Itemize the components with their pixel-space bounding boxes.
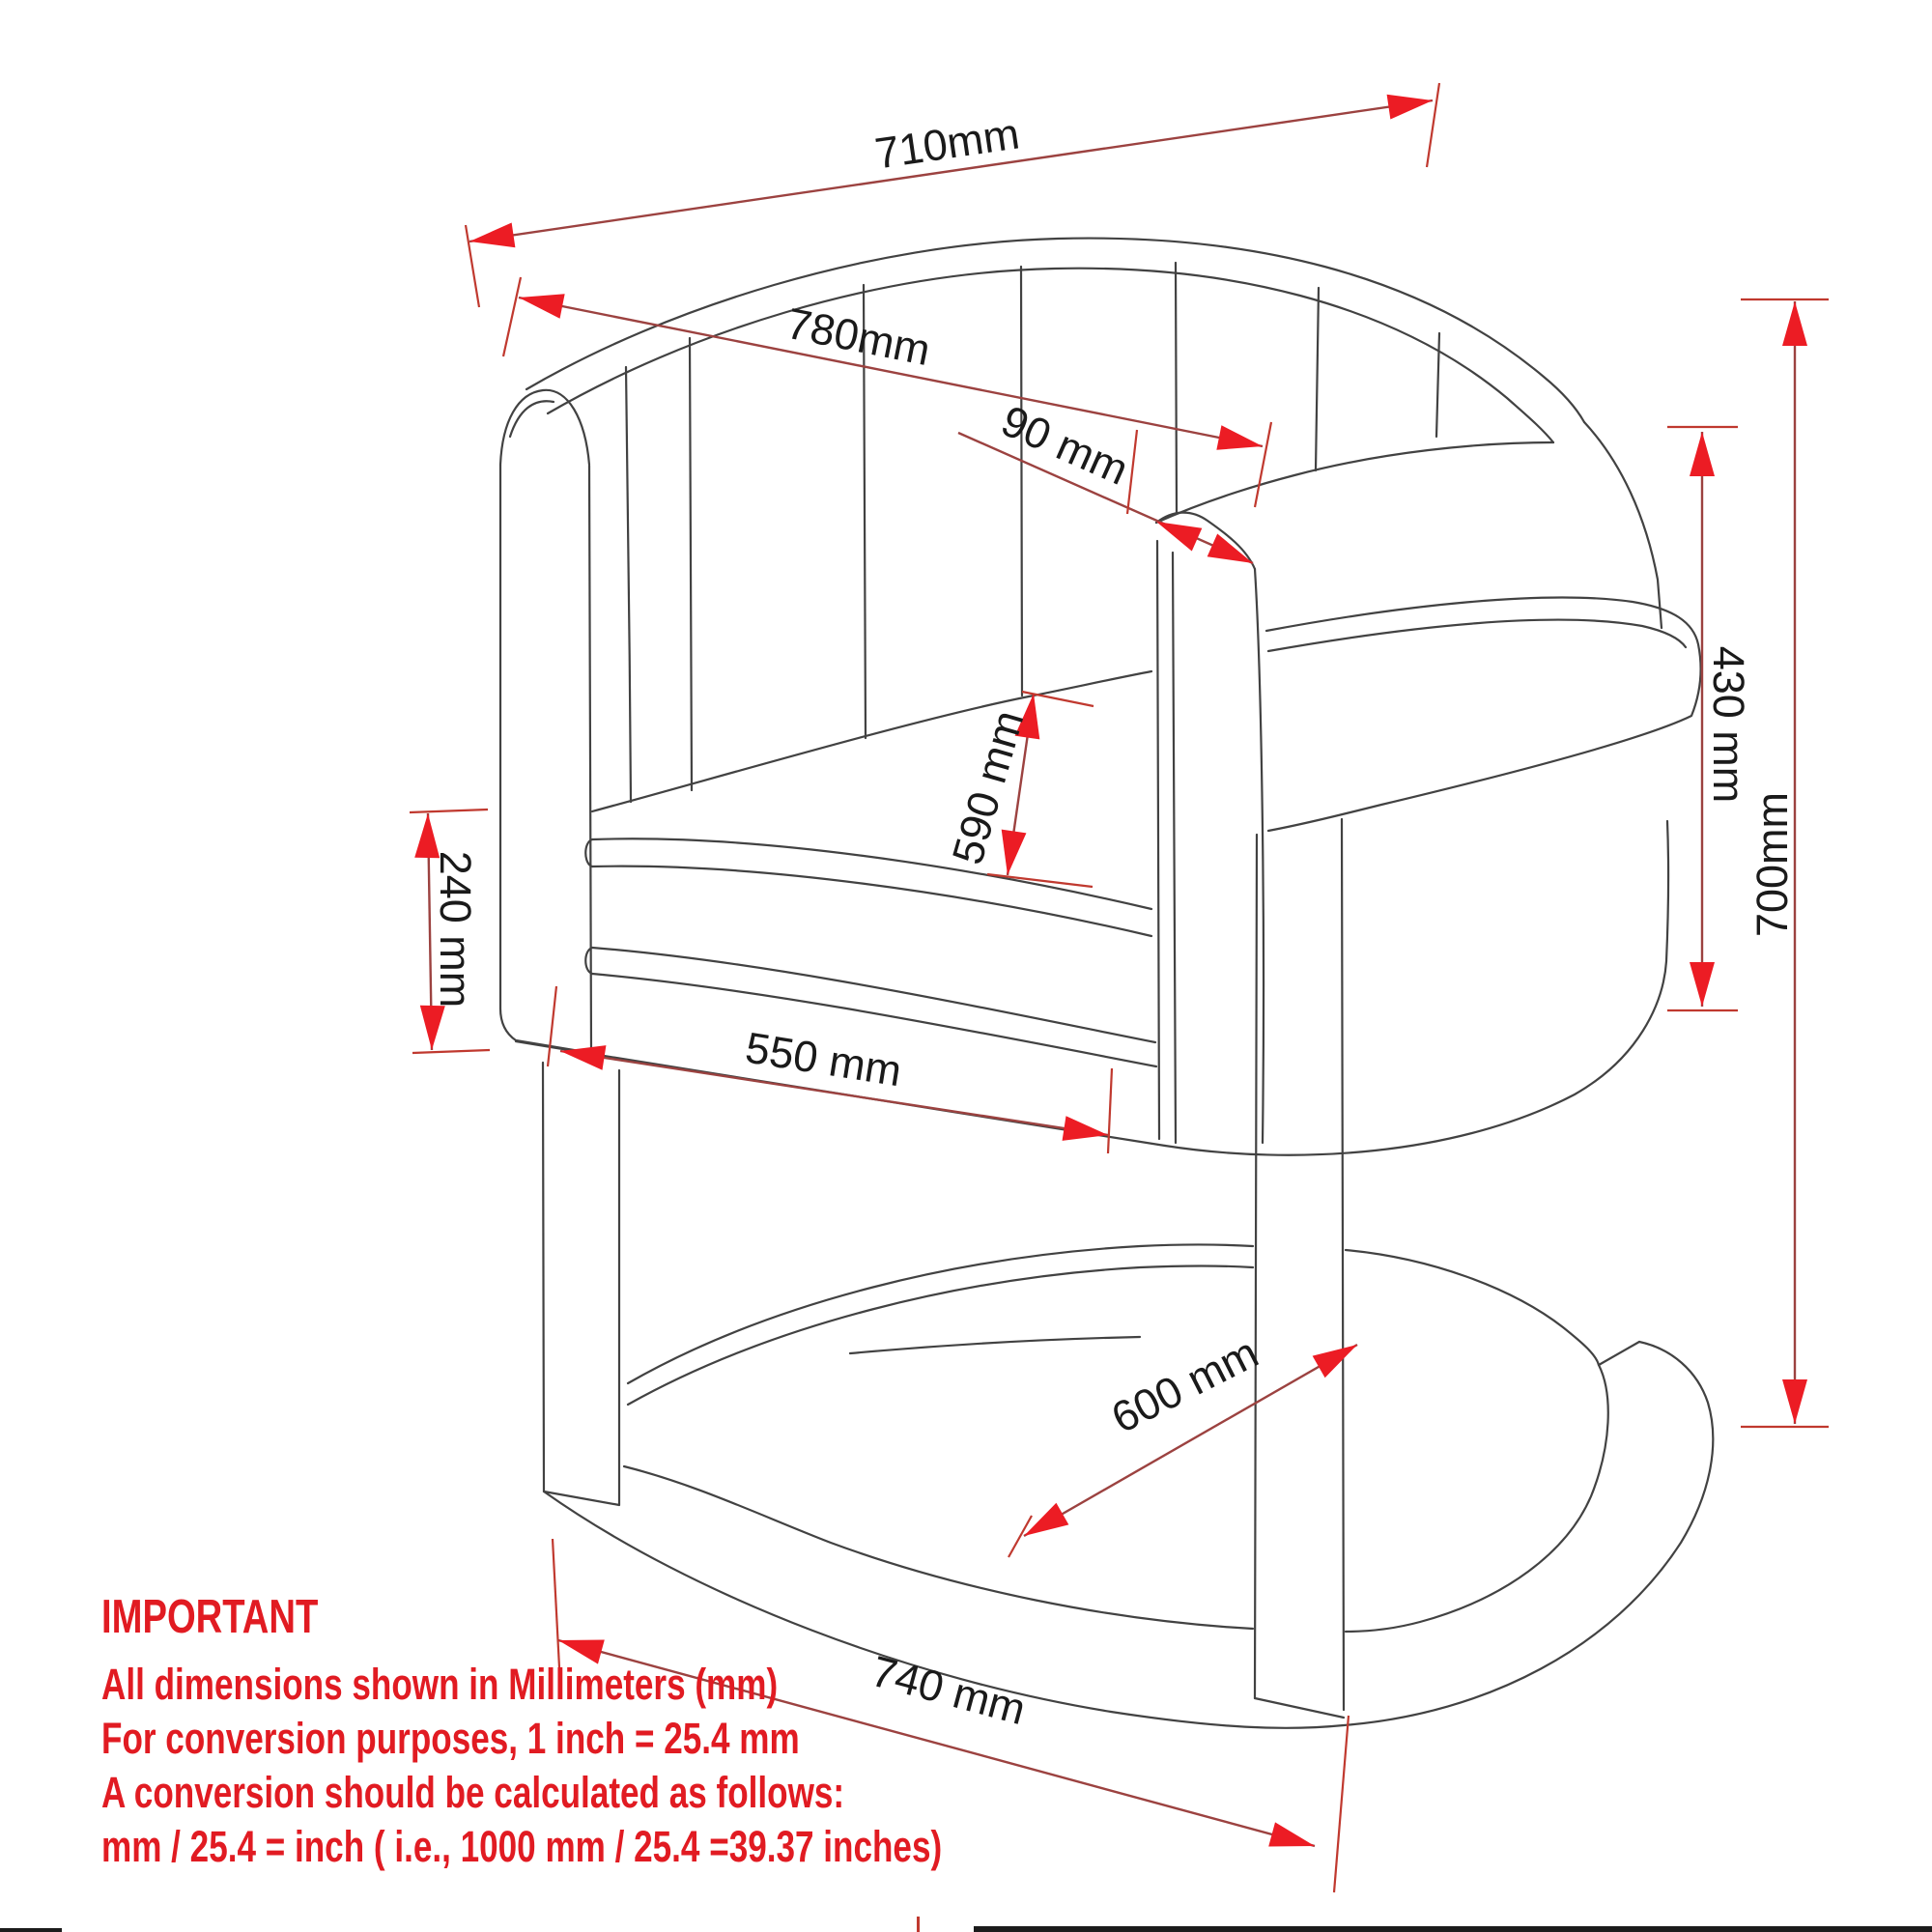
arrowhead-590-bottom-icon [995,830,1026,877]
arrowhead-700-top-icon [1782,301,1807,346]
back-seam-5 [1176,263,1177,513]
dimension-550: 550 mm [548,986,1112,1153]
base-ring-hole-back-top [628,1245,1253,1384]
arrowhead-430-bottom-icon [1690,962,1715,1007]
seat-base-band-top [592,948,1155,1042]
base-right-post-right-edge [1342,819,1344,1710]
base-right-post-left-edge [1255,835,1257,1698]
arrowhead-550-left-icon [558,1038,606,1070]
dim-label-240: 240 mm [431,851,480,1009]
note-title: IMPORTANT [101,1590,930,1644]
bottom-border-left [0,1928,62,1932]
note-line-1: All dimensions shown in Millimeters (mm) [101,1658,930,1712]
dim-label-430: 430 mm [1704,646,1753,804]
arrowhead-90-left-icon [1151,510,1203,551]
seat-piping-top [592,838,1151,909]
arrowhead-550-right-icon [1063,1116,1110,1148]
belt-band-inner-line [1268,620,1686,651]
arrowhead-780-right-icon [1216,425,1264,459]
back-seam-1 [626,367,631,802]
seat-piping-bottom [592,867,1151,936]
arrowhead-780-left-icon [516,285,564,319]
dimension-90: 90 mm [958,396,1258,575]
note-line-4: mm / 25.4 = inch ( i.e., 1000 mm / 25.4 … [101,1820,930,1874]
arrowhead-710-left-icon [468,222,515,253]
base-ring-end-face [1599,1342,1639,1365]
back-seam-2 [690,338,692,790]
dimension-600: 600 mm [1009,1327,1363,1557]
base-ring-floor-line [850,1337,1140,1353]
important-note: IMPORTANT All dimensions shown in Millim… [101,1590,1164,1874]
base-left-post [543,1063,619,1505]
arrowhead-710-right-icon [1387,88,1435,119]
arrowhead-740-right-icon [1268,1822,1318,1858]
belt-band-outline [1266,598,1701,831]
seat-back-edge [592,671,1151,811]
base-ring-hole-right [1346,1365,1608,1632]
back-seam-6 [1316,288,1319,470]
base-ring-hole-back-right [1346,1250,1599,1365]
left-arm-front-face [500,465,591,1053]
dimension-240: 240 mm [410,810,490,1053]
dim-label-550: 550 mm [742,1023,905,1096]
dimension-drawing-page: 710mm 780mm 90 mm 430 mm 700mm [0,0,1932,1932]
dimension-430: 430 mm [1667,427,1753,1010]
arrowhead-600-right-icon [1313,1334,1364,1378]
arrowhead-240-bottom-icon [419,1006,445,1050]
barrel-right-edge-upper [1584,422,1662,628]
dimension-590: 590 mm [943,692,1094,887]
dimension-710: 710mm [466,83,1439,307]
base-right-post-bottom [1255,1698,1344,1718]
dim-label-600: 600 mm [1103,1327,1265,1442]
note-line-3: A conversion should be calculated as fol… [101,1766,930,1820]
right-arm-front-edge-2 [1173,553,1176,1143]
right-arm-front-edge-1 [1157,541,1159,1139]
arrowhead-700-bottom-icon [1782,1379,1807,1424]
bottom-border-right [974,1926,1932,1932]
dim-label-700: 700mm [1747,792,1797,937]
dimension-780: 780mm [503,277,1271,507]
barrel-bottom-right-rim [1165,961,1666,1155]
note-line-2: For conversion purposes, 1 inch = 25.4 m… [101,1712,930,1766]
dim-label-780: 780mm [782,298,934,375]
right-arm-top-inner-edge [1156,442,1553,523]
dimension-700: 700mm [1741,299,1829,1427]
arrowhead-430-top-icon [1690,432,1715,476]
barrel-right-edge-lower [1666,821,1668,961]
bottom-red-tick [917,1917,920,1932]
back-seam-4 [1021,267,1022,696]
dim-label-710: 710mm [872,108,1023,178]
